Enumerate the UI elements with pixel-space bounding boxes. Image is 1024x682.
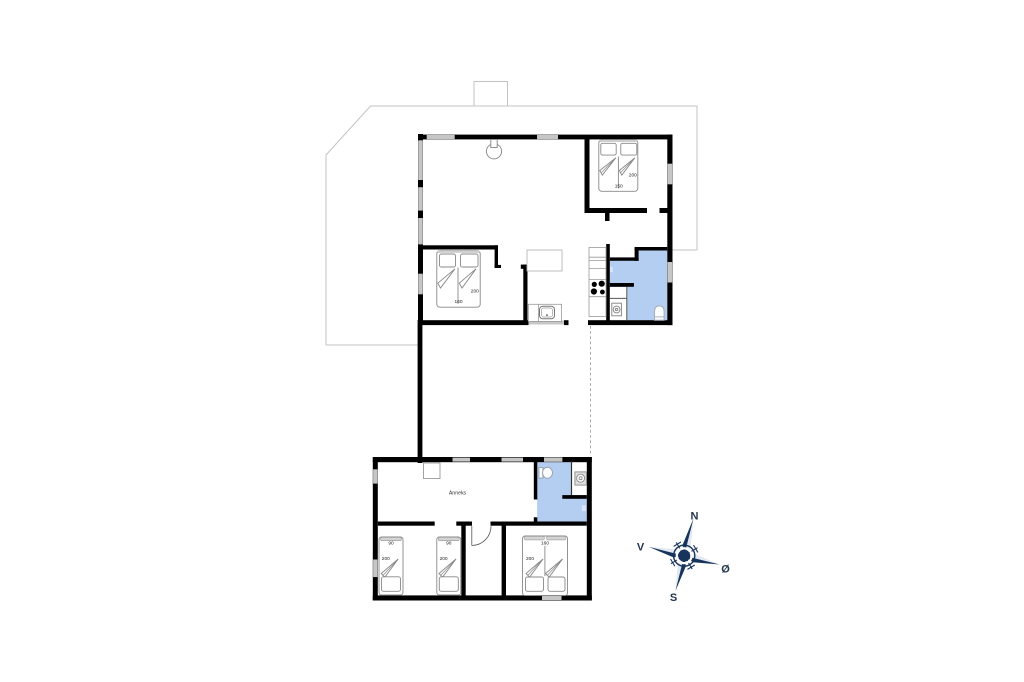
- svg-text:90: 90: [388, 540, 394, 546]
- svg-text:200: 200: [526, 556, 534, 562]
- svg-text:150: 150: [615, 184, 623, 190]
- svg-text:V: V: [637, 542, 645, 554]
- svg-text:S: S: [670, 592, 677, 604]
- svg-text:160: 160: [541, 541, 549, 547]
- svg-text:200: 200: [440, 556, 448, 562]
- svg-text:Ø: Ø: [721, 564, 730, 576]
- svg-text:200: 200: [629, 173, 637, 179]
- svg-text:Anneks: Anneks: [449, 491, 467, 497]
- svg-text:200: 200: [471, 289, 479, 295]
- svg-text:200: 200: [382, 556, 390, 562]
- svg-text:160: 160: [454, 299, 462, 305]
- svg-text:90: 90: [446, 540, 452, 546]
- svg-text:N: N: [691, 510, 699, 522]
